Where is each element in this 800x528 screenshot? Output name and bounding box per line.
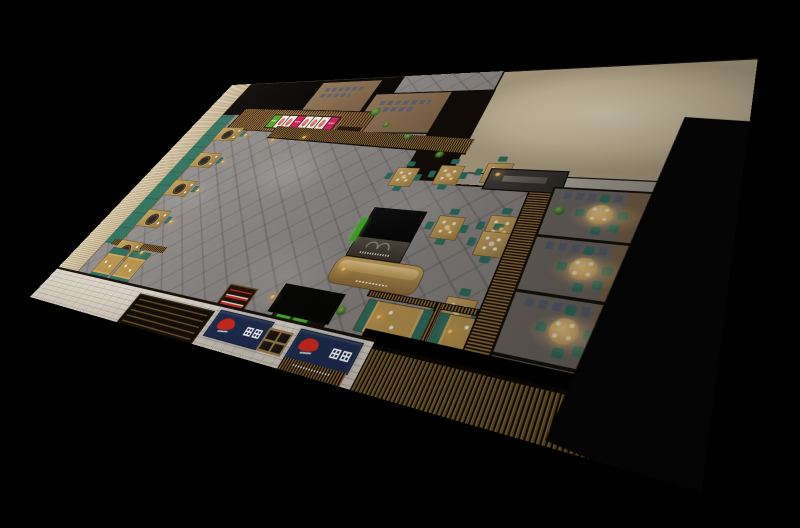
render-canvas: [0, 0, 800, 528]
tower-sign-text: [359, 251, 390, 257]
restaurant-floorplan-scene: [30, 58, 758, 492]
window-pane: [276, 333, 291, 344]
brand-logo-icon: [296, 338, 321, 352]
brand-sign-glyphs: [327, 346, 354, 365]
storefront-opening: [115, 293, 215, 345]
window-pane: [270, 343, 285, 354]
round-table: [566, 256, 601, 282]
round-table: [584, 204, 616, 225]
round-table: [545, 316, 582, 347]
brand-logo-icon: [214, 318, 237, 330]
